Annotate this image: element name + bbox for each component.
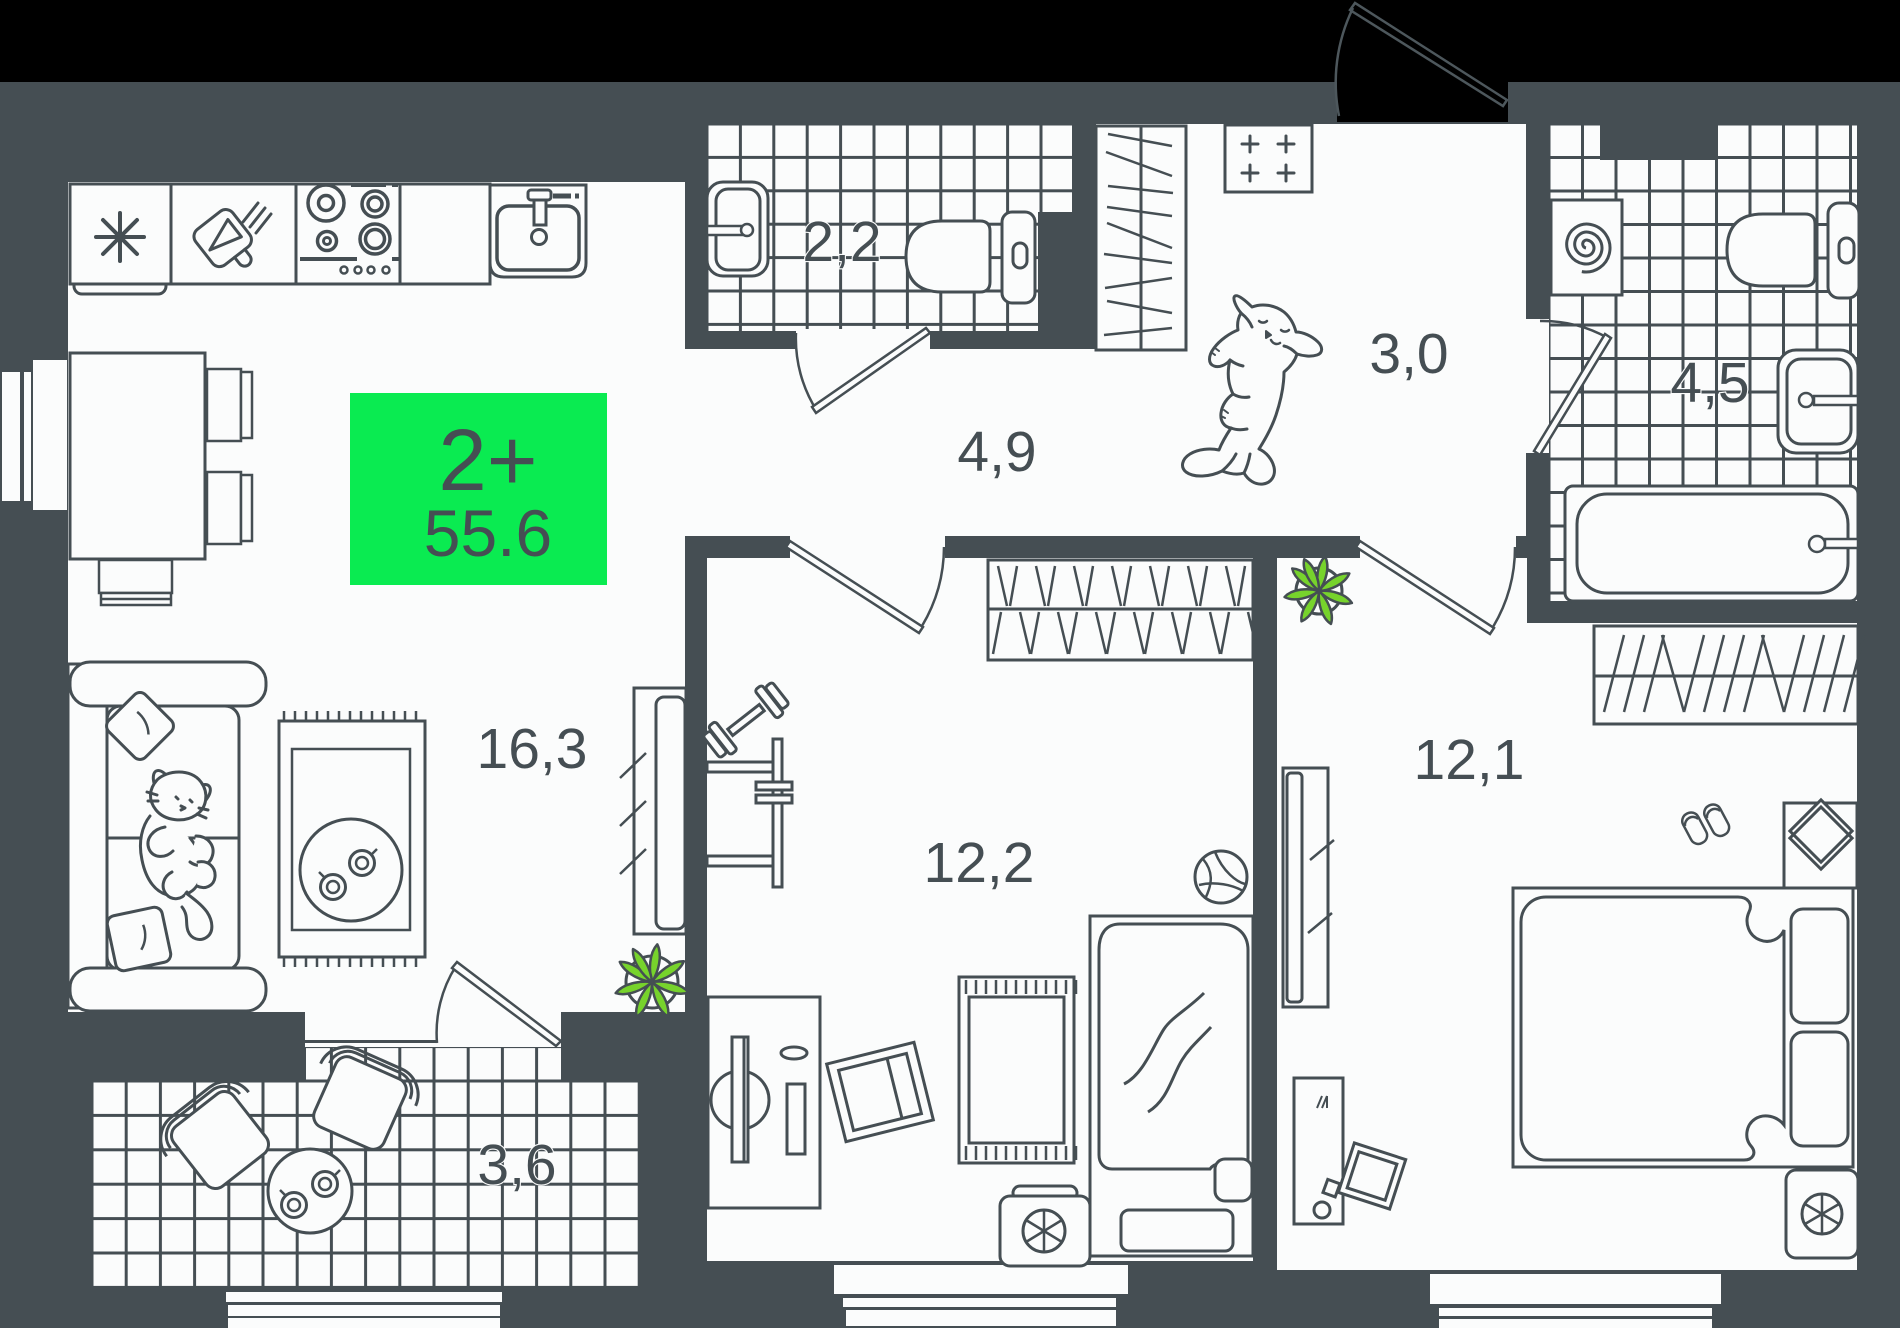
- svg-text:12,1: 12,1: [1414, 728, 1525, 792]
- svg-text:16,3: 16,3: [477, 717, 588, 781]
- svg-text:3,0: 3,0: [1369, 322, 1448, 386]
- svg-text:4,5: 4,5: [1670, 351, 1749, 415]
- svg-text:3,6: 3,6: [477, 1133, 556, 1197]
- svg-text:55.6: 55.6: [424, 496, 552, 570]
- svg-text:12,2: 12,2: [924, 831, 1035, 895]
- svg-text:2,2: 2,2: [802, 210, 881, 274]
- svg-text:2+: 2+: [438, 412, 537, 509]
- svg-text:4,9: 4,9: [957, 420, 1036, 484]
